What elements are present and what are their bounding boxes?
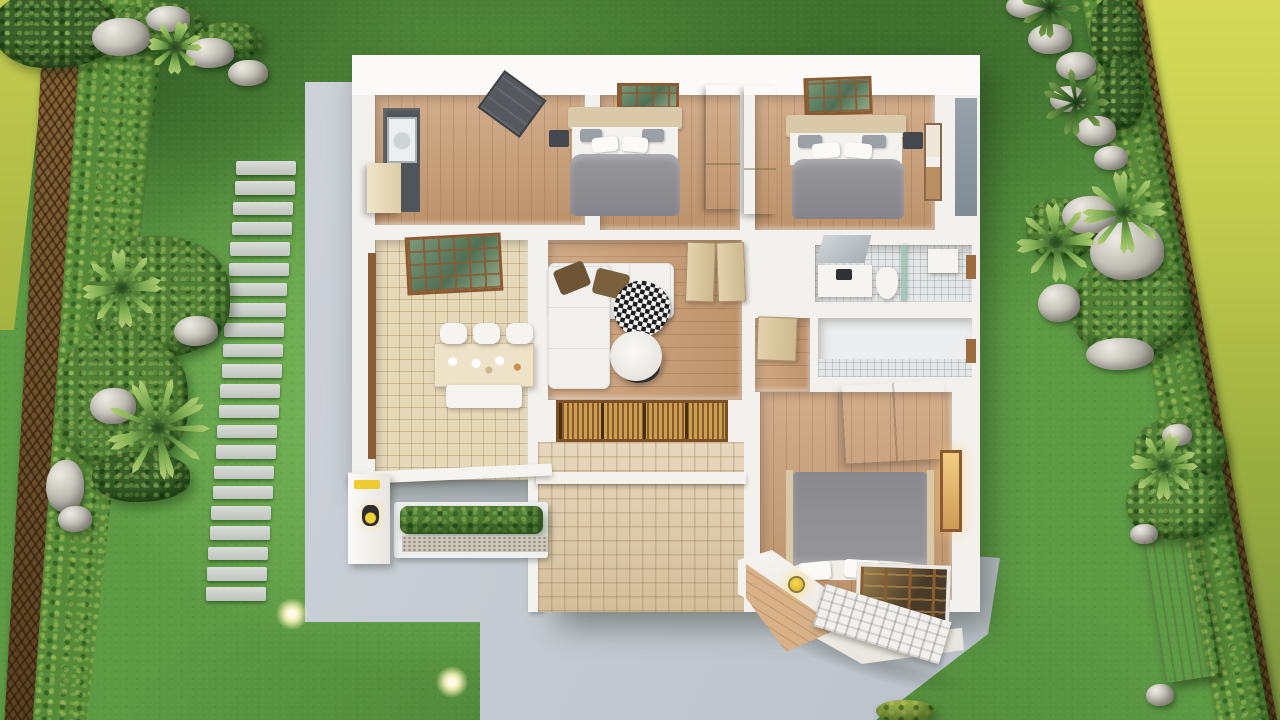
plant-core: [115, 282, 129, 294]
stepping-stone: [235, 181, 295, 195]
coffee-table: [610, 331, 662, 381]
planter-gravel: [402, 536, 548, 552]
stepping-stone: [214, 466, 274, 480]
stepping-stone: [211, 506, 271, 520]
stepping-stone: [229, 263, 289, 277]
yucca-plant: [1082, 170, 1166, 254]
bed-1-pillow: [591, 136, 618, 154]
bed-2-nightstand: [903, 132, 923, 149]
vanity-accessories: [836, 269, 852, 280]
hallway-door: [685, 242, 716, 303]
dining-chair: [440, 323, 467, 344]
plant-core: [1117, 206, 1131, 218]
stepping-stone: [227, 283, 287, 297]
pillar-lamp: [362, 505, 379, 526]
stepping-stone: [206, 587, 266, 601]
stepping-stone: [208, 547, 268, 561]
stepping-stone: [207, 567, 267, 581]
stepping-stone: [213, 486, 273, 500]
dining-table: [434, 343, 534, 387]
dining-chair: [473, 323, 500, 344]
garden-rock: [228, 60, 268, 86]
stepping-stone: [236, 161, 296, 175]
stepping-stone: [223, 344, 283, 358]
bed-2-pillow: [811, 142, 840, 159]
stepping-stone: [226, 303, 286, 317]
dining-chair: [506, 323, 533, 344]
bedroom-3-window: [940, 450, 962, 532]
shower-glass-panel: [901, 245, 907, 301]
bed-1-nightstand: [549, 130, 569, 147]
garden-rock: [174, 316, 218, 346]
garden-house-aerial-render: [0, 0, 1280, 720]
bathroom-shelf: [928, 249, 958, 273]
yucca-plant: [1020, 0, 1080, 38]
bed-2-blanket: [792, 159, 904, 219]
hallway-door: [716, 242, 746, 303]
garden-bush: [876, 700, 934, 720]
planter-shrubs: [400, 506, 543, 534]
kitchen-wall-trim: [368, 253, 376, 459]
yucca-plant: [148, 20, 202, 74]
yucca-plant: [1130, 432, 1198, 500]
garden-rock: [1086, 338, 1154, 370]
garden-rock: [1038, 284, 1080, 322]
stepping-stone: [222, 364, 282, 378]
plant-core: [151, 422, 165, 434]
shower-tile-strip: [818, 359, 972, 377]
plant-core: [1049, 236, 1063, 248]
toilet: [876, 267, 898, 299]
bedroom-3-wardrobe: [842, 380, 948, 463]
stepping-stone: [230, 242, 290, 256]
garden-rock: [1094, 146, 1128, 170]
yucca-plant: [106, 376, 210, 480]
bed-2-pillow: [843, 142, 872, 160]
stepping-stone: [232, 222, 292, 236]
yucca-plant: [1042, 68, 1110, 136]
bed-1-pillow: [621, 136, 648, 153]
right-wall-window-frame: [966, 255, 976, 279]
plant-core: [1069, 96, 1083, 108]
stepping-stone: [224, 323, 284, 337]
stepping-stone: [220, 384, 280, 398]
hallway-right-door: [756, 316, 798, 361]
washing-machine: [387, 117, 417, 163]
laundry-cabinet: [367, 163, 401, 213]
louvered-clerestory-windows: [556, 400, 728, 442]
stepping-stone: [210, 526, 270, 540]
stepping-stone: [216, 445, 276, 459]
bathroom-mirror: [817, 235, 872, 263]
plant-core: [168, 41, 182, 53]
wardrobe-between-bedrooms: [706, 85, 740, 209]
porch-sphere-lamp: [790, 578, 803, 591]
garden-rock: [46, 460, 84, 512]
plant-core: [1157, 460, 1171, 472]
stepping-stone: [219, 405, 279, 419]
stepping-stone: [217, 425, 277, 439]
bedroom-2-window: [803, 76, 872, 116]
garden-light-glow: [436, 666, 468, 698]
dining-bench: [446, 385, 522, 408]
french-double-door: [405, 233, 504, 296]
yucca-plant: [82, 248, 162, 328]
wall-art-frames: [924, 123, 942, 201]
bed-1-blanket: [570, 154, 680, 216]
garden-rock: [92, 18, 150, 56]
bedroom-2-wardrobe: [744, 86, 776, 214]
stepping-stone: [233, 202, 293, 216]
right-wall-window-frame: [966, 339, 976, 363]
pillar-cap-light: [354, 480, 380, 489]
front-brick-wall: [538, 442, 744, 612]
gray-accent-wall: [955, 98, 977, 216]
facade-white-beam: [536, 472, 746, 484]
garden-rock: [1146, 684, 1174, 706]
bed-1-headboard: [568, 107, 682, 129]
plant-core: [1043, 2, 1057, 14]
garden-light-glow: [276, 598, 308, 630]
garden-rock: [58, 506, 92, 532]
